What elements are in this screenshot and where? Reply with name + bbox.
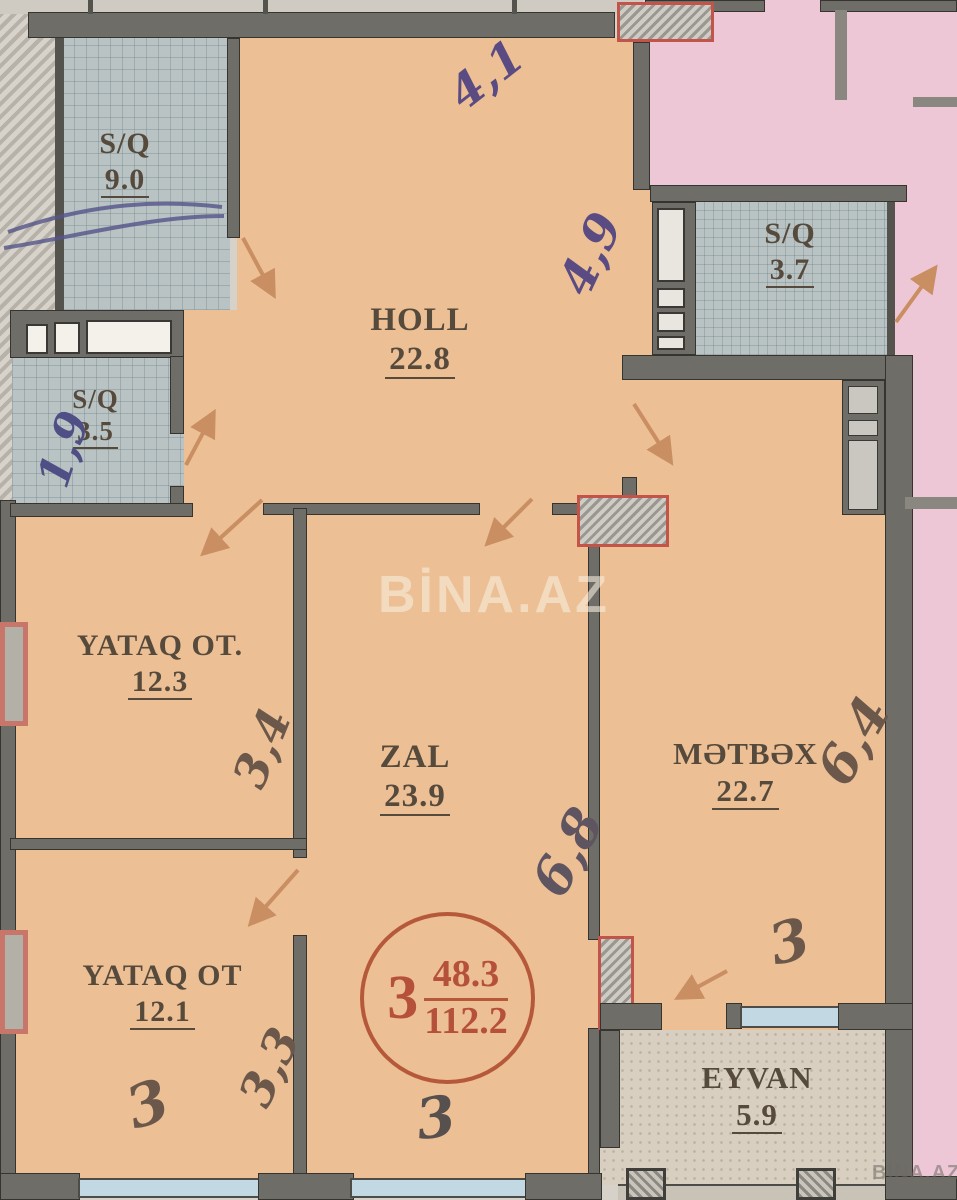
door-panel <box>657 288 685 308</box>
cabinet <box>86 320 172 354</box>
wall <box>525 1173 602 1200</box>
wall-tick <box>263 0 268 14</box>
wall <box>887 202 895 355</box>
room-area: 12.3 <box>128 666 193 701</box>
stamp-areas: 48.3 112.2 <box>424 954 507 1043</box>
wall <box>0 1173 80 1200</box>
wall <box>10 838 307 850</box>
stamp-living-area: 48.3 <box>424 954 507 1001</box>
wall <box>650 185 907 202</box>
ventilation-shaft <box>617 2 714 42</box>
window <box>350 1178 530 1198</box>
neighbor-wall <box>835 10 847 100</box>
wall <box>293 508 307 858</box>
duct-panel <box>848 420 878 436</box>
window <box>78 1178 262 1198</box>
cabinet <box>26 324 48 354</box>
label-balcony: EYVAN 5.9 <box>662 1062 852 1134</box>
label-holl: HOLL 22.8 <box>330 303 510 379</box>
area-stamp: 3 48.3 112.2 <box>360 912 535 1084</box>
label-living: ZAL 23.9 <box>330 740 500 816</box>
room-area: 22.8 <box>385 342 455 380</box>
room-area: 5.9 <box>732 1099 782 1135</box>
room-area: 9.0 <box>101 164 150 199</box>
room-area: 12.1 <box>130 996 195 1031</box>
wall <box>838 1003 913 1030</box>
wall <box>552 503 579 515</box>
room-name: YATAQ OT. <box>40 630 280 662</box>
label-sq37: S/Q 3.7 <box>715 218 865 288</box>
wall <box>28 12 615 38</box>
balcony-post <box>796 1168 836 1200</box>
room-name: HOLL <box>330 303 510 338</box>
room-name: S/Q <box>715 218 865 250</box>
window <box>740 1006 840 1028</box>
room-name: S/Q <box>28 385 163 413</box>
wall-tick <box>88 0 93 14</box>
neighbor-wall <box>913 97 957 107</box>
room-area: 22.7 <box>712 775 778 811</box>
ventilation-shaft <box>577 495 669 547</box>
room-name: ZAL <box>330 740 500 775</box>
watermark-center: BİNA.AZ <box>378 565 610 625</box>
duct-panel <box>848 386 878 414</box>
door-panel <box>657 312 685 332</box>
balcony-post <box>626 1168 666 1200</box>
wall <box>258 1173 354 1200</box>
room-name: EYVAN <box>662 1062 852 1095</box>
window-frame <box>0 930 28 1034</box>
wall <box>227 38 240 238</box>
wall <box>588 1028 600 1180</box>
floor-plan: S/Q 9.0 S/Q 3.5 S/Q 3.7 HOLL 22.8 YATAQ … <box>0 0 957 1200</box>
wall <box>600 1030 620 1148</box>
cabinet <box>54 322 80 354</box>
watermark-corner: BINA.AZ <box>872 1162 957 1185</box>
room-name: S/Q <box>60 128 190 160</box>
room-area: 3.7 <box>766 254 815 289</box>
wall <box>885 355 913 1200</box>
stamp-total-area: 112.2 <box>424 1001 507 1043</box>
neighbor-wall <box>905 497 957 509</box>
label-bedroom1: YATAQ OT. 12.3 <box>40 630 280 700</box>
door-panel <box>657 336 685 350</box>
stamp-room-count: 3 <box>387 967 418 1029</box>
wall <box>622 355 907 380</box>
room-name: YATAQ OT <box>40 960 285 992</box>
wall <box>633 42 650 190</box>
label-sq9: S/Q 9.0 <box>60 128 190 198</box>
wall <box>600 1003 662 1030</box>
window-frame <box>0 622 28 726</box>
wall-tick <box>512 0 517 14</box>
door-panel <box>657 208 685 282</box>
duct-panel <box>848 440 878 510</box>
room-area: 23.9 <box>380 779 450 817</box>
wall <box>170 356 184 434</box>
corridor <box>180 310 240 515</box>
label-bedroom2: YATAQ OT 12.1 <box>40 960 285 1030</box>
wall <box>10 503 193 517</box>
